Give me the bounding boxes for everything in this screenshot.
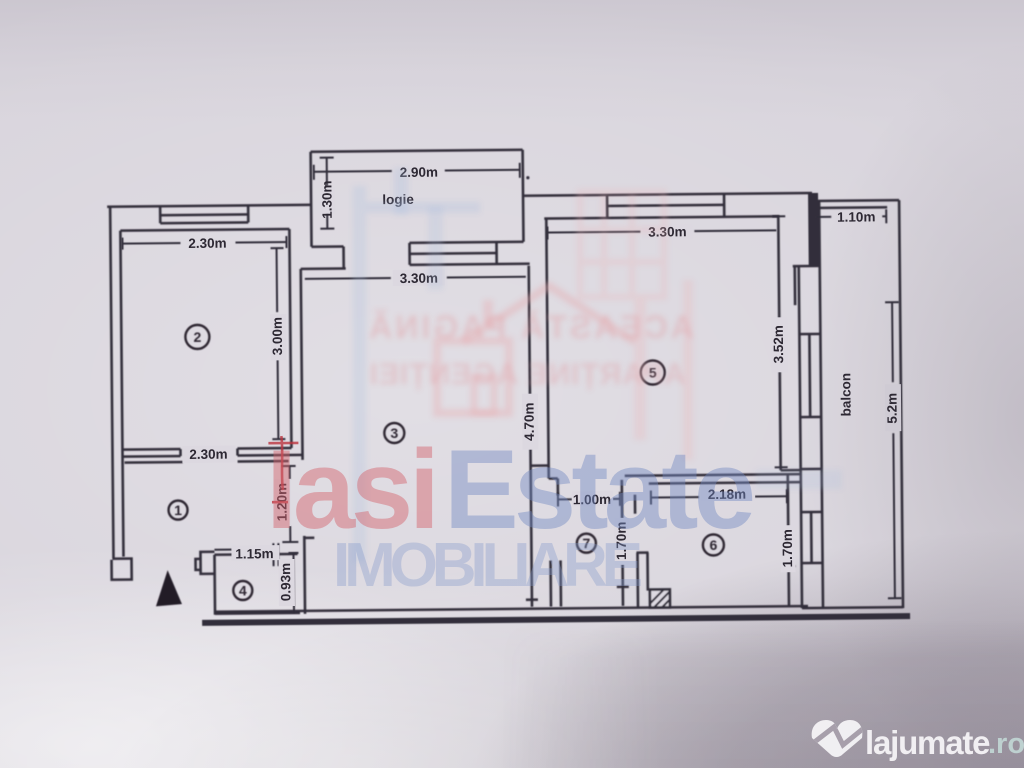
svg-text:5.2m: 5.2m	[884, 393, 899, 424]
svg-text:1.30m: 1.30m	[319, 180, 334, 218]
svg-text:IMOBILIARE: IMOBILIARE	[333, 531, 643, 600]
svg-text:1: 1	[174, 502, 182, 518]
svg-text:balcon: balcon	[838, 373, 853, 417]
svg-text:4: 4	[239, 582, 247, 598]
svg-text:ACEASTĂ PAGINĂ: ACEASTĂ PAGINĂ	[366, 309, 694, 345]
svg-text:2.30m: 2.30m	[189, 447, 227, 462]
svg-text:2: 2	[193, 329, 201, 345]
svg-text:2.30m: 2.30m	[188, 236, 226, 251]
svg-text:lajumate: lajumate	[865, 724, 990, 761]
svg-text:3.00m: 3.00m	[270, 317, 285, 355]
svg-text:1.10m: 1.10m	[837, 209, 875, 224]
svg-text:3.52m: 3.52m	[771, 325, 786, 363]
svg-text:0.93m: 0.93m	[278, 563, 293, 601]
svg-text:.ro: .ro	[988, 728, 1024, 760]
svg-text:APARȚINE AGENȚIEI: APARȚINE AGENȚIEI	[368, 358, 685, 391]
svg-text:1.70m: 1.70m	[780, 529, 795, 567]
